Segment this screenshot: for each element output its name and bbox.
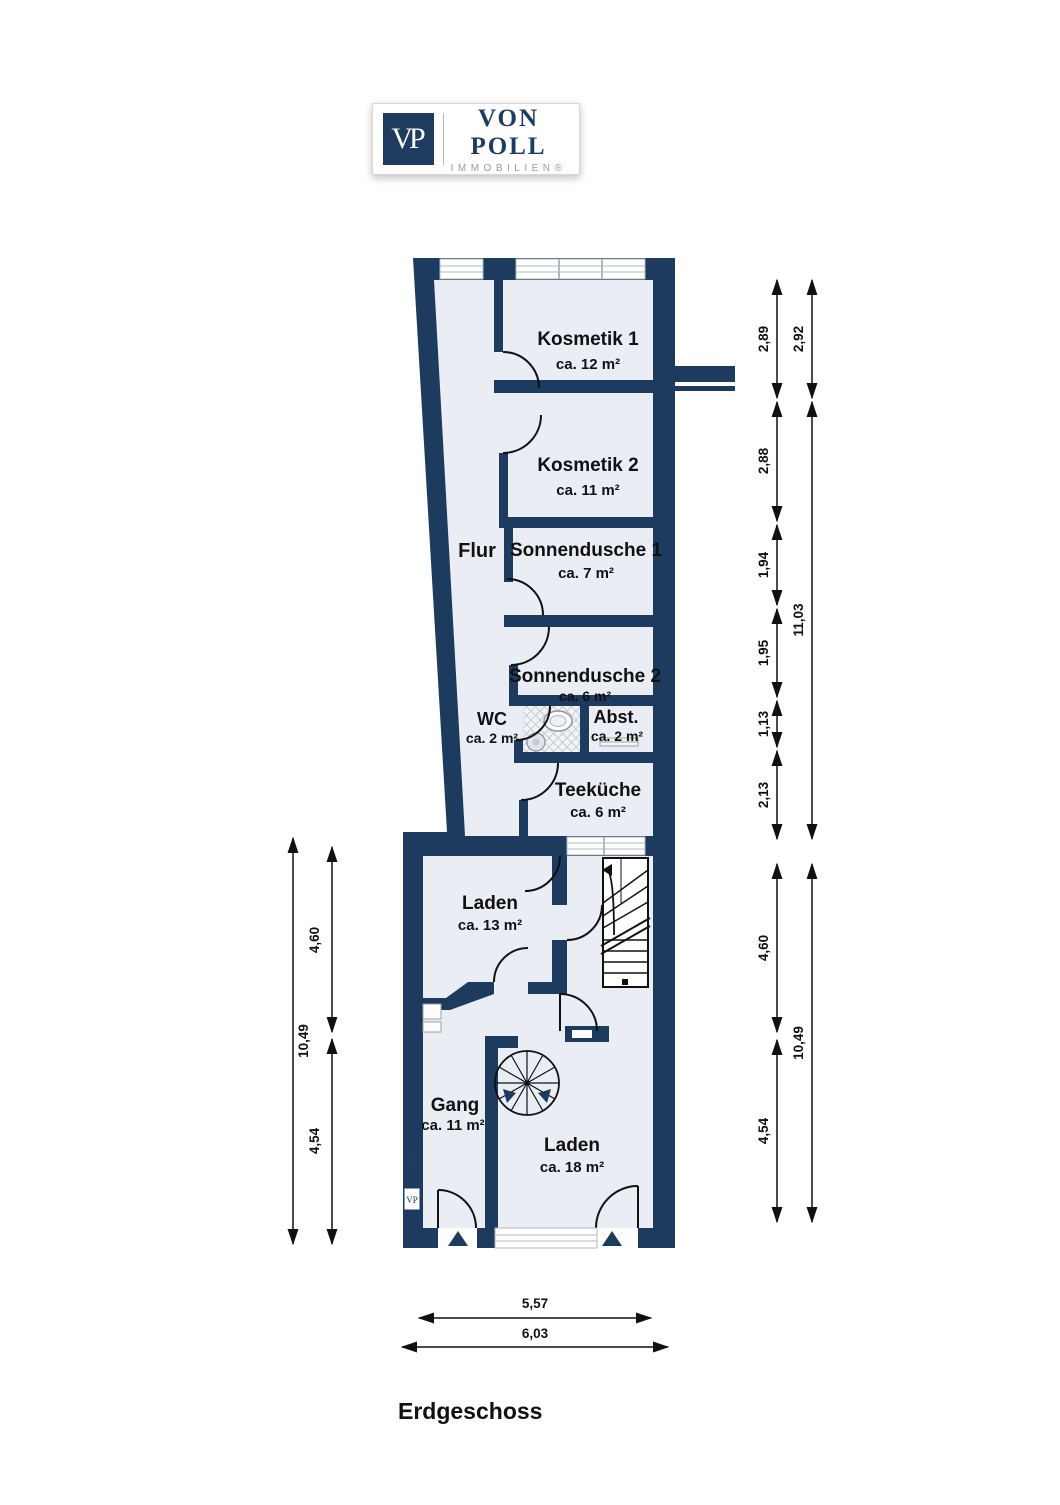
- logo-text: VON POLL IMMOBILIEN®: [444, 105, 579, 174]
- label-sonnendusche2: Sonnendusche 2: [509, 666, 661, 687]
- label-teekueche: Teeküche: [555, 780, 641, 801]
- logo-subtitle: IMMOBILIEN®: [444, 163, 573, 174]
- label-abst: Abst.: [594, 707, 639, 727]
- dim-right-10-49: 10,49: [791, 1026, 806, 1060]
- right-wall-stub: [675, 366, 735, 382]
- floor-plan-page: VP VON POLL IMMOBILIEN®: [0, 0, 1060, 1500]
- floor-plan-svg: VON POLL IMMOBILIEN VP Kosmetik 1 ca. 12…: [0, 0, 1060, 1500]
- dim-2-89: 2,89: [756, 326, 771, 352]
- label-laden13-area: ca. 13 m²: [458, 917, 522, 934]
- label-kosmetik2-area: ca. 11 m²: [556, 482, 619, 499]
- dim-2-13: 2,13: [756, 781, 771, 808]
- stair-room-window: [567, 837, 645, 855]
- dim-11-03: 11,03: [791, 603, 806, 637]
- watermark-brand: VON POLL: [406, 1131, 415, 1180]
- label-teekueche-area: ca. 6 m²: [570, 804, 626, 821]
- watermark-sub: IMMOBILIEN: [416, 1131, 421, 1160]
- label-kosmetik1: Kosmetik 1: [537, 329, 639, 350]
- dim-1-13: 1,13: [756, 710, 771, 737]
- label-abst-area: ca. 2 m²: [591, 728, 643, 744]
- dim-left-4-54: 4,54: [307, 1127, 322, 1154]
- label-sonnendusche1: Sonnendusche 1: [510, 540, 662, 561]
- bottom-openings: [438, 1228, 638, 1248]
- dim-6-03: 6,03: [522, 1326, 549, 1341]
- label-laden13: Laden: [462, 893, 518, 914]
- shop-window: [495, 1228, 597, 1248]
- dim-2-92: 2,92: [791, 326, 806, 352]
- label-laden18-area: ca. 18 m²: [540, 1159, 604, 1176]
- page-title: Erdgeschoss: [398, 1398, 542, 1425]
- dim-1-94: 1,94: [756, 551, 771, 578]
- staircase-spiral: [495, 1051, 559, 1115]
- label-wc: WC: [477, 709, 507, 729]
- logo-brand: VON POLL: [444, 105, 573, 161]
- left-wall-window: [423, 1004, 441, 1032]
- label-kosmetik2: Kosmetik 2: [537, 455, 638, 476]
- dim-right-4-60: 4,60: [756, 935, 771, 961]
- dim-left-4-60: 4,60: [307, 927, 322, 953]
- label-flur: Flur: [458, 540, 496, 562]
- label-wc-area: ca. 2 m²: [466, 730, 518, 746]
- staircase-straight: [601, 858, 650, 987]
- watermark-vp: VP: [406, 1195, 418, 1205]
- vonpoll-logo: VP VON POLL IMMOBILIEN®: [372, 103, 580, 175]
- stub-window: [572, 1030, 592, 1038]
- dim-2-88: 2,88: [756, 447, 771, 474]
- label-sonnendusche2-area: ca. 6 m²: [559, 688, 611, 704]
- label-gang-area: ca. 11 m²: [421, 1117, 484, 1134]
- facade-windows-top: [440, 259, 645, 279]
- dim-5-57: 5,57: [522, 1296, 548, 1311]
- wc-room: [523, 706, 580, 752]
- label-gang: Gang: [431, 1095, 480, 1116]
- dim-1-95: 1,95: [756, 639, 771, 666]
- dim-left-10-49: 10,49: [296, 1024, 311, 1058]
- label-kosmetik1-area: ca. 12 m²: [556, 356, 620, 373]
- dim-right-4-54: 4,54: [756, 1117, 771, 1144]
- label-laden18: Laden: [544, 1135, 600, 1156]
- label-sonnendusche1-area: ca. 7 m²: [558, 565, 614, 582]
- vp-monogram-icon: VP: [383, 113, 434, 165]
